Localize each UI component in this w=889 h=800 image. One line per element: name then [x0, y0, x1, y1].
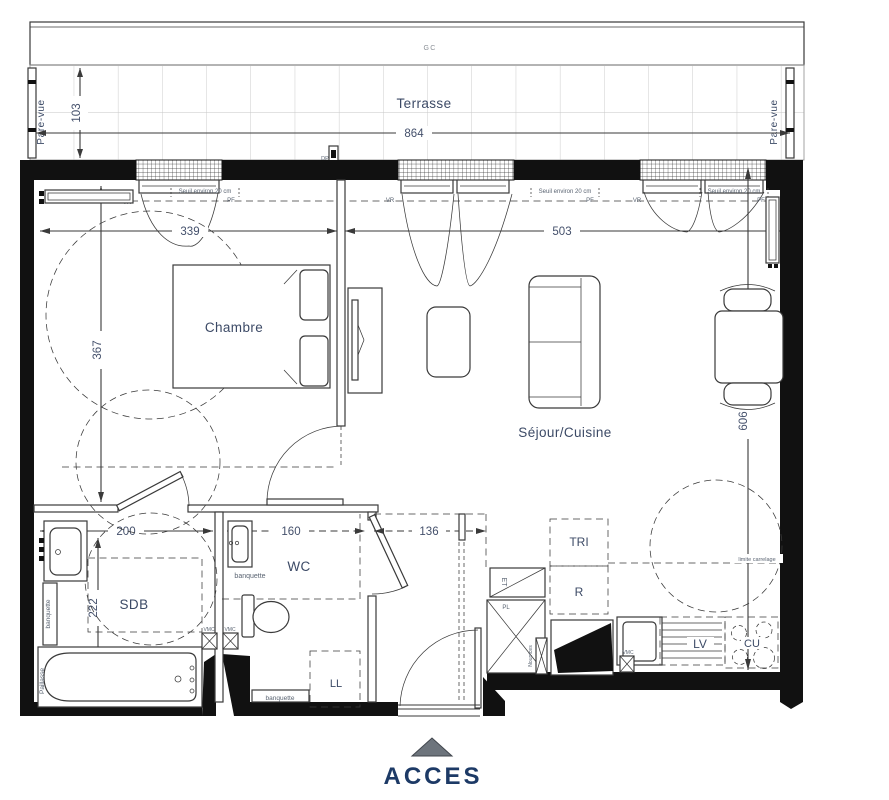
floor-plan-drawing: GC Terrasse Pare-vue Pare-vue 864 103 DP	[0, 0, 889, 800]
radiator-sejour	[766, 197, 779, 268]
svg-text:222: 222	[88, 598, 100, 617]
kitchen-doorway	[551, 620, 613, 675]
room-label-sdb: SDB	[120, 597, 149, 612]
tri-box: TRI	[550, 519, 608, 566]
entry-wall-stub	[459, 514, 465, 540]
svg-text:606: 606	[738, 411, 750, 430]
sofa	[529, 276, 600, 408]
seuil-label: Seuil environ 20 cm	[708, 189, 761, 195]
vmc-label: VMC	[622, 650, 634, 656]
access-arrow-icon	[412, 738, 452, 756]
washbasin-sdb	[39, 521, 87, 581]
ll-label: LL	[330, 678, 342, 690]
seuil-label: Seuil environ 20 cm	[179, 189, 232, 195]
dimensions: 339 503 367 606 200 160 136	[40, 167, 780, 698]
room-label-terrasse: Terrasse	[397, 96, 452, 111]
fridge-box: R	[550, 566, 608, 614]
bathtub	[38, 647, 202, 707]
seuil-label: Seuil environ 20 cm	[539, 189, 592, 195]
wall-chambre-sejour	[337, 180, 345, 426]
svg-text:136: 136	[419, 526, 438, 538]
svg-text:160: 160	[281, 526, 300, 538]
banquette-label-wc: banquette	[234, 573, 265, 580]
door-chambre	[267, 426, 343, 505]
dim-entry-width: 136	[374, 524, 486, 538]
exterior-walls	[20, 160, 803, 716]
svg-text:367: 367	[92, 340, 104, 359]
room-label-chambre: Chambre	[205, 320, 263, 335]
dim-chambre-width: 339	[40, 224, 337, 238]
washbasin-wc	[228, 521, 252, 567]
room-label-sejour: Séjour/Cuisine	[518, 425, 611, 440]
vr-marker: VR	[633, 198, 642, 204]
pare-vue-left-label: Pare-vue	[36, 99, 47, 144]
paillasse-label: Paillasse	[39, 668, 46, 694]
pare-vue-right-label: Pare-vue	[769, 99, 780, 144]
banquette-label: banquette	[266, 695, 295, 702]
banquette-bottom: banquette	[252, 690, 309, 702]
wall-wc-top	[188, 505, 378, 512]
pf-marker: PF	[586, 198, 594, 204]
cu-label: CU	[744, 638, 760, 650]
nourrices-label: Nourrices	[528, 645, 534, 667]
furniture-chambre: Chambre	[39, 190, 330, 388]
radiator-chambre	[39, 190, 133, 204]
tri-label: TRI	[569, 535, 588, 549]
dim-sejour-depth: 606	[738, 167, 755, 670]
access-marker: ACCES	[383, 738, 482, 790]
wall-sdb-wc	[215, 512, 223, 702]
coffee-table	[427, 307, 470, 377]
door-sdb	[117, 472, 189, 511]
fridge-label: R	[575, 585, 584, 599]
kitchen: TRI R ET PL Nourrices VMC LV	[487, 519, 783, 675]
windows: Seuil environ 20 cm Seuil environ 20 cm …	[62, 160, 768, 286]
vmc-label: VMC	[203, 627, 215, 633]
window-sejour-double	[398, 160, 514, 286]
door-entry	[398, 628, 481, 716]
dishwasher: LV	[660, 617, 725, 665]
floor-plan: GC Terrasse Pare-vue Pare-vue 864 103 DP	[0, 0, 889, 800]
terrasse-tiles	[30, 65, 804, 160]
svg-text:864: 864	[404, 128, 424, 140]
room-label-wc: WC	[287, 559, 310, 574]
guardrail-band	[30, 22, 804, 65]
access-label: ACCES	[383, 763, 482, 790]
limite-carrelage-label: limite carrelage	[738, 557, 775, 563]
placard-label: PL	[502, 605, 510, 611]
bathroom-fixtures: banquette Paillasse SDB banquette VMC VM…	[38, 521, 311, 707]
tiling-limit: limite carrelage	[732, 554, 783, 563]
et-duct: ET	[490, 568, 545, 597]
accessibility-circles	[46, 211, 782, 645]
lv-label: LV	[693, 637, 707, 651]
dim-chambre-depth: 367	[92, 186, 109, 502]
svg-text:503: 503	[552, 226, 571, 238]
vmc-label: VMC	[224, 627, 236, 633]
svg-text:103: 103	[71, 103, 83, 122]
tv-unit	[348, 288, 382, 393]
door-wc	[369, 515, 407, 594]
pf-marker: PF	[227, 198, 235, 204]
banquette-sdb: banquette	[43, 583, 57, 645]
washing-machine-slot: LL	[310, 651, 360, 707]
wall-wc-right	[368, 596, 376, 702]
et-label: ET	[500, 578, 507, 588]
pf-marker: PF	[757, 198, 765, 204]
terrasse-area: GC Terrasse Pare-vue Pare-vue 864 103 DP	[28, 22, 804, 170]
svg-text:339: 339	[180, 226, 199, 238]
guardrail-label: GC	[424, 45, 437, 52]
wall-sdb-top-left	[34, 505, 118, 512]
banquette-label: banquette	[45, 599, 52, 628]
dining-table	[715, 285, 783, 410]
interior-walls	[34, 180, 378, 702]
vr-marker: VR	[386, 198, 395, 204]
pare-vue-left-panel	[28, 68, 36, 158]
sdb-zone-square	[88, 558, 202, 632]
pare-vue-right-panel	[786, 68, 794, 158]
vmc-kitchen: VMC	[620, 650, 634, 672]
toilet	[242, 595, 289, 637]
cooktop: CU	[725, 617, 778, 669]
